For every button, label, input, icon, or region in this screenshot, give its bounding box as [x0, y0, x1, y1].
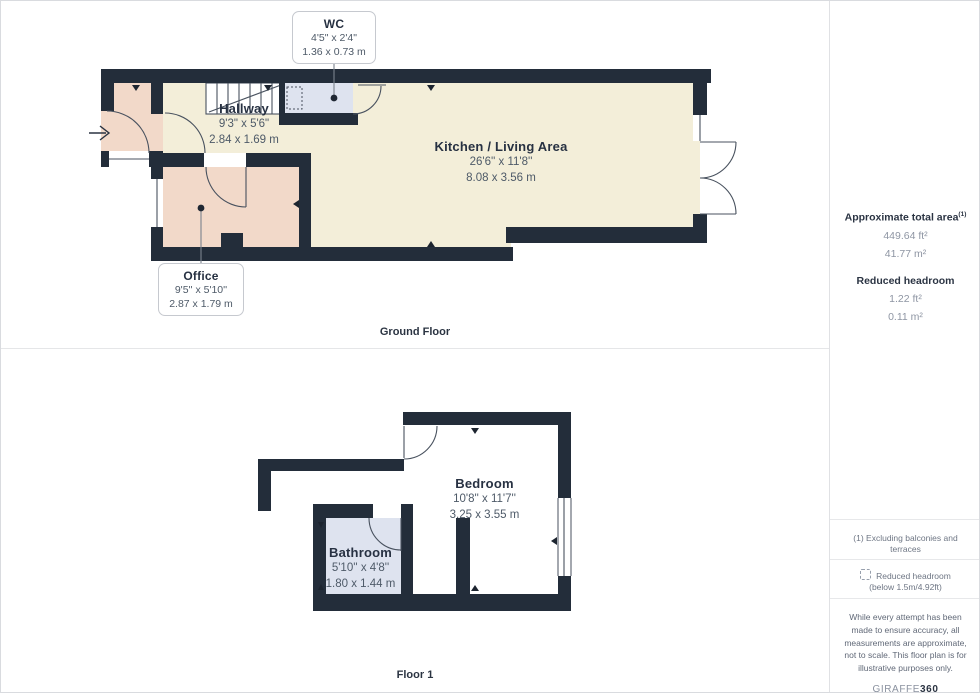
total-area-footnote-ref: (1): [958, 211, 966, 218]
brand-suffix: 360: [920, 684, 939, 693]
floor-1-plan: [1, 349, 829, 693]
room-dim-metric: 2.87 x 1.79 m: [162, 298, 240, 311]
brand-name: GIRAFFE: [872, 684, 920, 693]
disclaimer-text: While every attempt has been made to ens…: [830, 599, 980, 675]
reduced-headroom-title: Reduced headroom: [830, 275, 980, 287]
disclaimer-block: While every attempt has been made to ens…: [830, 598, 980, 693]
reduced-headroom-ft: 1.22 ft²: [830, 293, 980, 305]
footnote-1: (1) Excluding balconies and terraces: [830, 519, 980, 559]
total-area-title: Approximate total area(1): [830, 211, 980, 224]
room-name: Office: [162, 269, 240, 283]
floor-1-windows: [558, 498, 571, 576]
ground-floor-title: Ground Floor: [1, 326, 829, 338]
floor-1-title: Floor 1: [1, 669, 829, 681]
reduced-headroom-icon: [860, 569, 871, 580]
footnote-1-text: (1) Excluding balconies and terraces: [830, 520, 980, 556]
ground-floor-plan: [1, 1, 829, 349]
headroom-legend: Reduced headroom (below 1.5m/4.92ft): [830, 559, 980, 598]
total-area-label: Approximate total area: [845, 212, 959, 224]
total-area-block: Approximate total area(1) 449.64 ft² 41.…: [830, 211, 980, 260]
wc-callout: WC 4'5" x 2'4" 1.36 x 0.73 m: [292, 11, 376, 64]
stairs: [206, 83, 283, 114]
room-dim-imperial: 4'5" x 2'4": [296, 32, 372, 45]
reduced-headroom-m: 0.11 m²: [830, 311, 980, 323]
room-dim-imperial: 9'5'' x 5'10'': [162, 284, 240, 297]
floorplan-canvas: WC 4'5" x 2'4" 1.36 x 0.73 m Office 9'5'…: [1, 1, 829, 693]
info-sidebar: Approximate total area(1) 449.64 ft² 41.…: [829, 1, 980, 693]
total-area-ft: 449.64 ft²: [830, 230, 980, 242]
room-dim-metric: 1.36 x 0.73 m: [296, 46, 372, 59]
legend-line2: (below 1.5m/4.92ft): [869, 582, 942, 592]
total-area-m: 41.77 m²: [830, 248, 980, 260]
reduced-headroom-block: Reduced headroom 1.22 ft² 0.11 m²: [830, 275, 980, 323]
floorplan-page: WC 4'5" x 2'4" 1.36 x 0.73 m Office 9'5'…: [0, 0, 980, 693]
office-callout: Office 9'5'' x 5'10'' 2.87 x 1.79 m: [158, 263, 244, 316]
bedroom-floor: [404, 425, 558, 594]
floor-divider: [1, 348, 829, 349]
room-name: WC: [296, 17, 372, 31]
giraffe360-logo: GIRAFFE360: [830, 684, 980, 693]
bathroom-floor: [326, 518, 401, 594]
legend-line1: Reduced headroom: [876, 571, 951, 581]
